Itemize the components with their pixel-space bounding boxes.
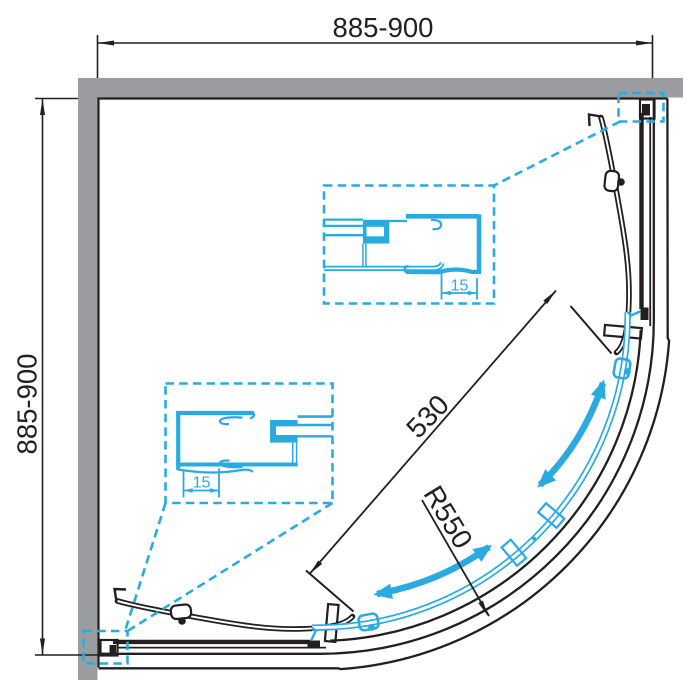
svg-text:885-900: 885-900 (12, 354, 43, 455)
svg-text:R550: R550 (418, 480, 479, 553)
svg-text:530: 530 (400, 389, 455, 444)
svg-text:15: 15 (451, 278, 469, 295)
svg-text:15: 15 (193, 475, 211, 492)
svg-text:885-900: 885-900 (333, 12, 434, 43)
